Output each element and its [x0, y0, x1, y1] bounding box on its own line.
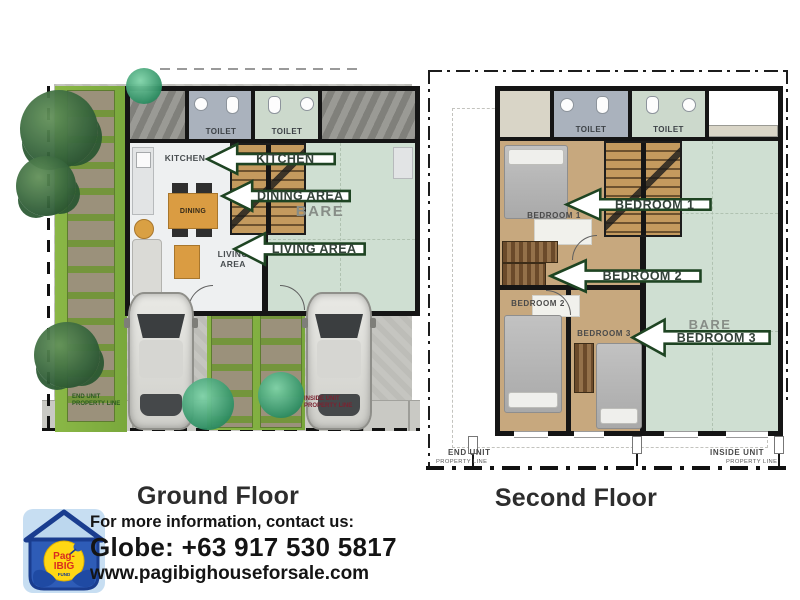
sf-grid-line — [712, 141, 714, 431]
callout-bedroom3: BEDROOM 3 — [631, 317, 771, 358]
callout-kitchen: KITCHEN — [206, 142, 336, 176]
sofa — [132, 239, 162, 297]
gf-wall — [251, 91, 255, 139]
tree — [16, 156, 76, 216]
sf-toilet-right-label: TOILET — [630, 125, 707, 134]
window — [726, 431, 768, 438]
gf-property-line-text: PROPERTY LINE — [72, 401, 146, 408]
dining-chair — [172, 183, 188, 193]
bed-pillow — [508, 392, 558, 408]
gf-counter-right — [393, 147, 413, 179]
sf-property-dashdot-top — [428, 70, 788, 72]
sf-property-line-left-label: PROPERTY LINE — [436, 459, 510, 465]
sf-property-line-right-label: PROPERTY LINE — [726, 459, 800, 465]
car-windshield — [137, 314, 185, 338]
window — [664, 431, 698, 438]
callout-dining-area-label: DINING AREA — [252, 179, 348, 213]
dining-table: DINING — [168, 193, 218, 229]
contact-website: www.pagibighouseforsale.com — [90, 563, 420, 585]
toilet-icon — [268, 96, 281, 114]
sf-property-dashdot-right — [786, 70, 788, 404]
gf-property-line-text: PROPERTY LINE — [304, 403, 378, 410]
tree — [20, 90, 98, 168]
callout-kitchen-label: KITCHEN — [237, 142, 333, 176]
ground-floor-caption: Ground Floor — [118, 482, 318, 511]
sf-property-line-bottom — [426, 466, 790, 470]
callout-bedroom2-label: BEDROOM 2 — [586, 258, 699, 294]
kitchen-counter — [132, 147, 154, 215]
contact-intro: For more information, contact us: — [90, 513, 410, 532]
gf-wall — [318, 91, 322, 139]
gf-toilet-left-room: TOILET — [188, 91, 254, 139]
shrub — [126, 68, 162, 104]
dining-chair — [196, 183, 212, 193]
sf-balcony — [707, 91, 778, 125]
callout-bedroom2: BEDROOM 2 — [549, 258, 702, 294]
sink-icon — [300, 97, 314, 111]
car-mirror — [302, 318, 308, 328]
window — [514, 431, 548, 438]
sf-toilet-right-room: TOILET — [630, 91, 707, 137]
coffee-table — [174, 245, 200, 279]
closet — [502, 263, 546, 287]
toilet-icon — [646, 96, 659, 114]
logo-text-line2: IBIG — [54, 561, 75, 572]
armchair — [134, 219, 154, 239]
contact-phone: Globe: +63 917 530 5817 — [90, 532, 420, 563]
sf-toilet-left-label: TOILET — [552, 125, 630, 134]
floor-plan-flyer: TOILET TOILET — [0, 0, 800, 600]
toilet-icon — [226, 96, 239, 114]
gf-grid-line — [340, 143, 342, 311]
callout-bedroom1: BEDROOM 1 — [565, 187, 712, 222]
second-floor-caption: Second Floor — [476, 484, 676, 513]
sf-wall — [705, 91, 709, 137]
gf-inside-unit-note: INSIDE UNIT PROPERTY LINE — [304, 396, 378, 410]
sf-wall — [550, 91, 554, 137]
bed — [504, 315, 562, 413]
shrub — [182, 378, 234, 430]
callout-living-area-label: LIVING AREA — [265, 231, 363, 267]
gf-dining-label: DINING — [180, 208, 206, 215]
callout-bedroom3-label: BEDROOM 3 — [665, 317, 769, 358]
car-roof — [139, 340, 183, 378]
car-roof — [317, 340, 361, 378]
gf-patio-right — [320, 91, 415, 139]
sf-ledge-right — [707, 125, 778, 137]
gf-top-property-dash — [160, 68, 360, 70]
gf-toilet-left-label: TOILET — [188, 127, 254, 136]
sf-inside-unit-label: INSIDE UNIT — [710, 448, 790, 457]
sink-icon — [194, 97, 208, 111]
callout-dining-area: DINING AREA — [221, 179, 351, 213]
wardrobe — [574, 343, 594, 393]
gf-end-unit-text: END UNIT — [72, 394, 146, 401]
sf-end-unit-label: END UNIT — [448, 448, 522, 457]
tree — [34, 322, 100, 388]
gf-toilet-right-room: TOILET — [254, 91, 320, 139]
sf-post-marker — [632, 436, 642, 454]
bed-pillow — [600, 408, 638, 424]
logo-text-line3: FUND — [58, 572, 71, 577]
sf-wall — [628, 91, 632, 137]
window — [574, 431, 604, 438]
sink-icon — [560, 98, 574, 112]
toilet-icon — [596, 96, 609, 114]
callout-living-area: LIVING AREA — [233, 231, 366, 267]
gf-toilet-right-label: TOILET — [254, 127, 320, 136]
car-mirror — [192, 318, 198, 328]
gf-end-unit-note: END UNIT PROPERTY LINE — [72, 394, 146, 408]
sf-ledge-left — [500, 91, 552, 138]
callout-bedroom1-label: BEDROOM 1 — [600, 187, 709, 222]
shrub — [258, 372, 304, 418]
gf-wall — [185, 91, 189, 139]
car-rear-window — [140, 394, 182, 416]
car-windshield — [315, 314, 363, 338]
sf-property-dashdot-left — [428, 70, 430, 466]
sf-toilet-left-room: TOILET — [552, 91, 630, 137]
bed — [504, 145, 568, 219]
car-mirror — [370, 318, 376, 328]
car-mirror — [124, 318, 130, 328]
sink-icon — [682, 98, 696, 112]
bed-pillow — [508, 149, 564, 165]
fridge — [136, 152, 151, 168]
gf-inside-unit-text: INSIDE UNIT — [304, 396, 378, 403]
